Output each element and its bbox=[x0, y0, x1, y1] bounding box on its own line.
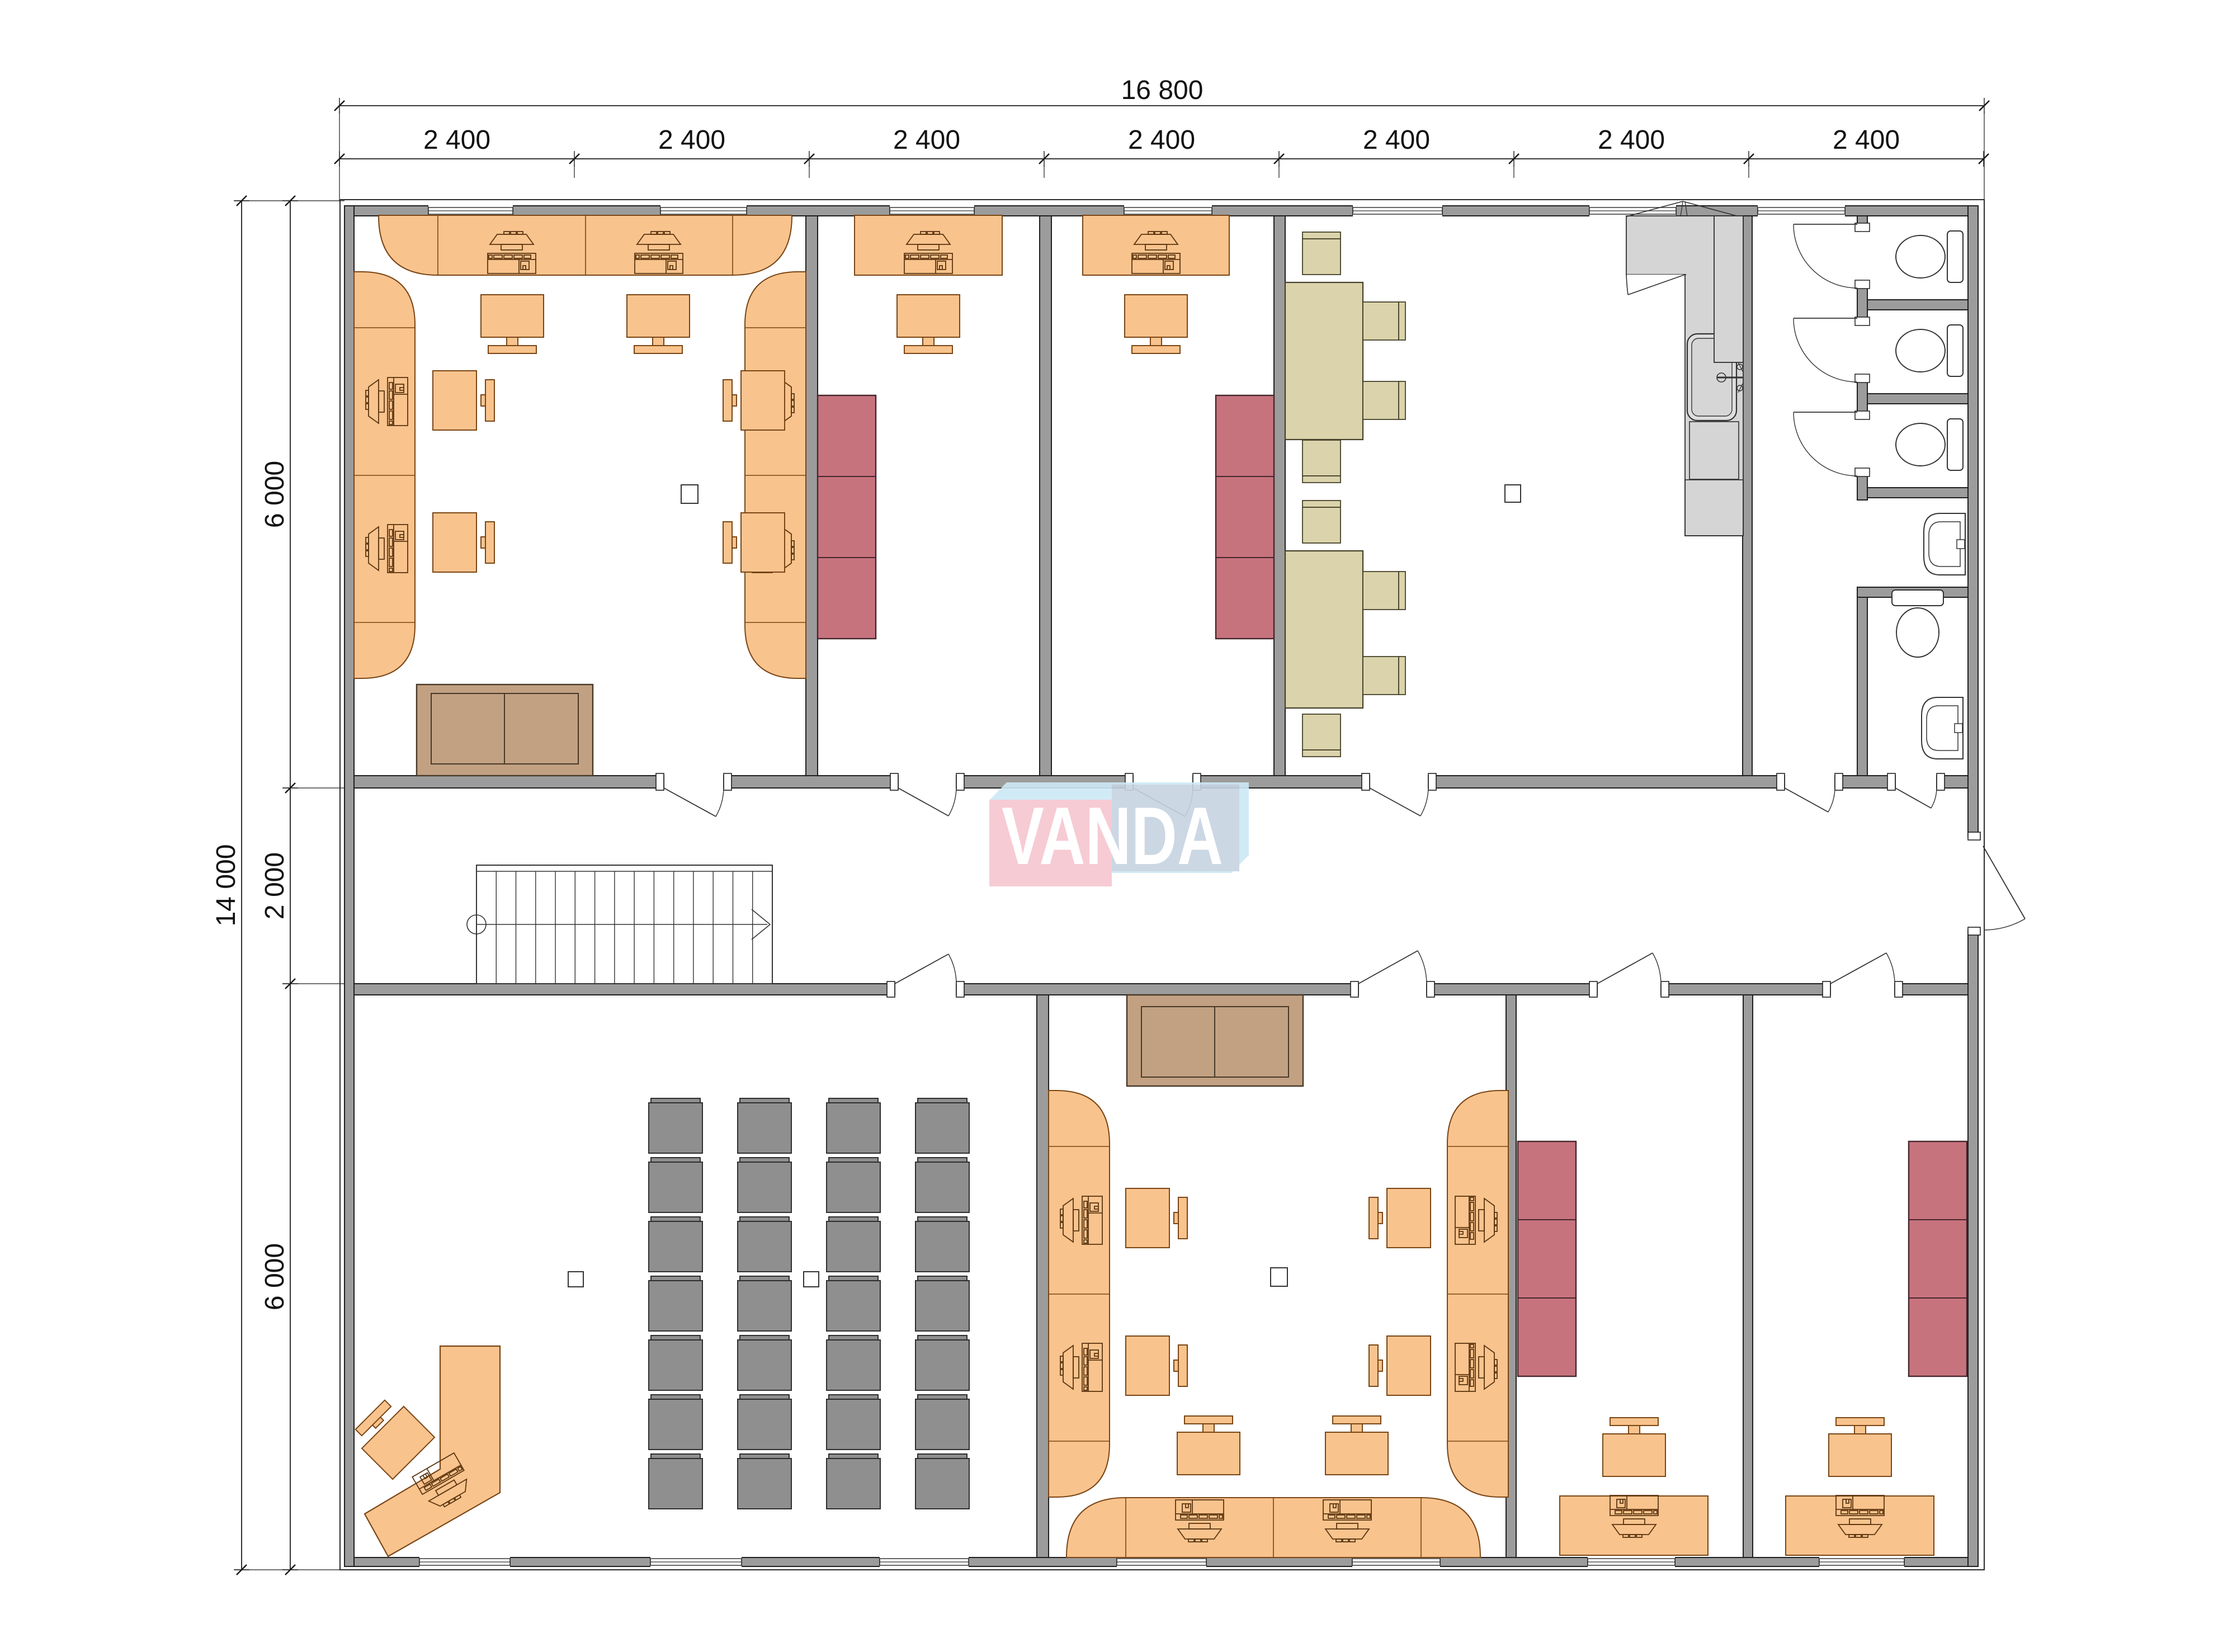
svg-text:2 400: 2 400 bbox=[1128, 125, 1195, 155]
svg-text:16 800: 16 800 bbox=[1121, 75, 1204, 105]
svg-text:2 400: 2 400 bbox=[1598, 125, 1665, 155]
svg-text:2 400: 2 400 bbox=[1833, 125, 1900, 155]
svg-text:2 000: 2 000 bbox=[260, 852, 290, 919]
svg-text:6 000: 6 000 bbox=[260, 461, 290, 528]
svg-text:2 400: 2 400 bbox=[1363, 125, 1430, 155]
svg-text:2 400: 2 400 bbox=[658, 125, 725, 155]
svg-text:VANDA: VANDA bbox=[1002, 790, 1223, 881]
svg-text:6 000: 6 000 bbox=[260, 1243, 290, 1310]
svg-text:2 400: 2 400 bbox=[893, 125, 960, 155]
svg-text:14 000: 14 000 bbox=[211, 844, 241, 927]
svg-text:2 400: 2 400 bbox=[423, 125, 490, 155]
